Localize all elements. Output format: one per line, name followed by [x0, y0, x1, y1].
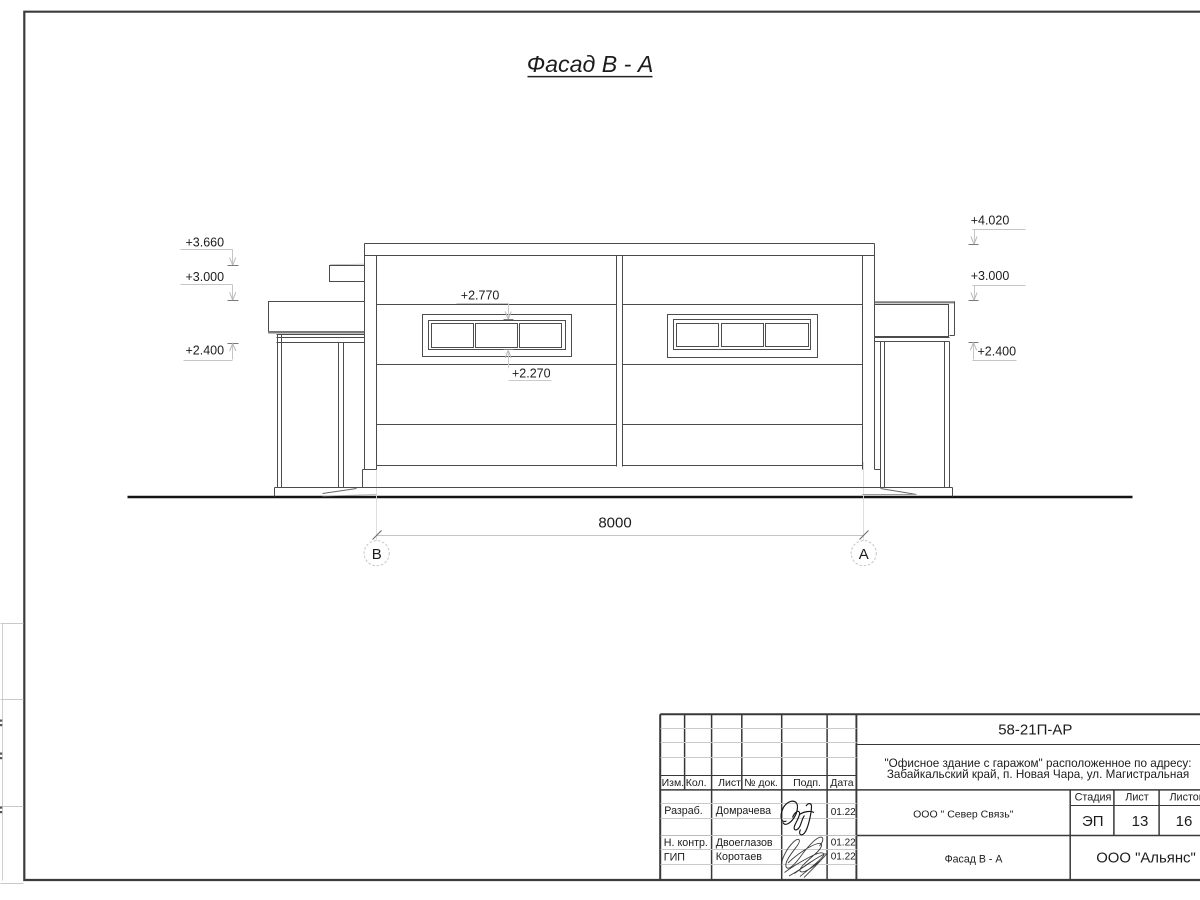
svg-text:Коротаев: Коротаев — [716, 851, 762, 863]
svg-text:8000: 8000 — [598, 514, 631, 531]
svg-text:01.22: 01.22 — [831, 838, 856, 849]
svg-text:Н. контр.: Н. контр. — [664, 837, 708, 849]
svg-text:ООО "Альянс": ООО "Альянс" — [1096, 851, 1196, 867]
svg-text:16: 16 — [1176, 813, 1193, 830]
svg-text:№ док.: № док. — [744, 777, 778, 789]
svg-text:В: В — [372, 546, 382, 563]
svg-text:Листов: Листов — [1169, 791, 1200, 803]
svg-text:Лист: Лист — [718, 777, 741, 789]
svg-text:Подп.: Подп. — [793, 777, 821, 789]
svg-text:+4.020: +4.020 — [971, 213, 1010, 227]
svg-text:13: 13 — [1132, 813, 1149, 830]
svg-text:Дата: Дата — [830, 777, 853, 789]
svg-text:+3.660: +3.660 — [186, 235, 225, 249]
svg-text:ЭП: ЭП — [1082, 813, 1104, 830]
svg-text:+3.000: +3.000 — [186, 270, 225, 284]
svg-text:Разраб.: Разраб. — [664, 805, 702, 817]
svg-text:01.22: 01.22 — [831, 852, 856, 863]
svg-text:01.22: 01.22 — [831, 807, 856, 818]
svg-text:ООО " Север Связь": ООО " Север Связь" — [913, 808, 1014, 820]
svg-text:Изм.: Изм. — [662, 777, 685, 789]
svg-text:+2.270: +2.270 — [512, 366, 551, 380]
svg-text:Домрачева: Домрачева — [716, 805, 771, 817]
svg-text:ГИП: ГИП — [664, 851, 685, 863]
svg-text:Двоеглазов: Двоеглазов — [716, 837, 773, 849]
svg-text:Стадия: Стадия — [1075, 791, 1112, 803]
svg-text:+2.400: +2.400 — [186, 344, 225, 358]
svg-text:+3.000: +3.000 — [971, 269, 1010, 283]
svg-text:Кол.: Кол. — [686, 777, 707, 789]
svg-text:58-21П-АР: 58-21П-АР — [998, 722, 1072, 739]
svg-text:Фасад В - А: Фасад В - А — [945, 854, 1004, 866]
svg-text:+2.770: +2.770 — [461, 288, 500, 302]
svg-text:А: А — [859, 546, 869, 563]
svg-text:Забайкальский край, п. Новая Ч: Забайкальский край, п. Новая Чара, ул. М… — [887, 768, 1189, 781]
svg-text:Лист: Лист — [1125, 791, 1149, 803]
svg-text:Фасад В - А: Фасад В - А — [527, 51, 654, 77]
svg-text:+2.400: +2.400 — [978, 344, 1017, 358]
